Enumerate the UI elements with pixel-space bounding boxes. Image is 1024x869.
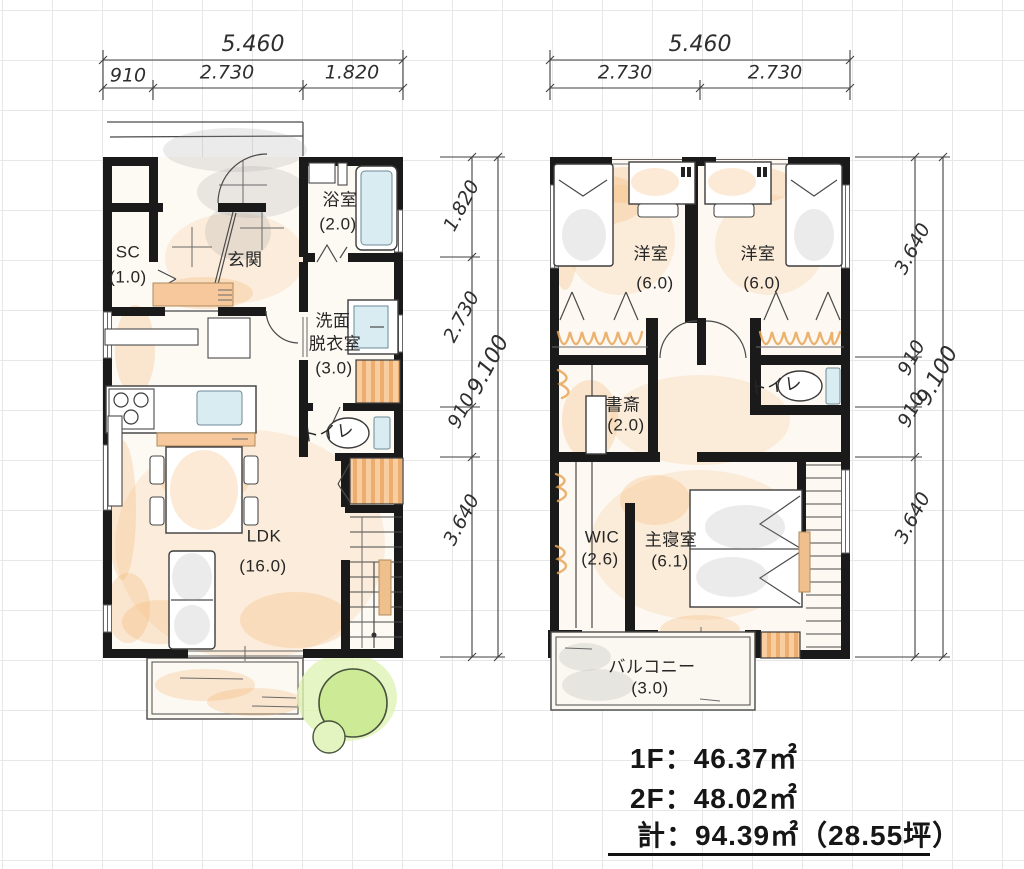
room-size-sc: (1.0) [109, 269, 146, 286]
hall-closet [761, 632, 800, 658]
room-size-ldk: (16.0) [239, 558, 286, 575]
stair-storage [350, 458, 403, 504]
room-size-wic: (2.6) [581, 551, 618, 568]
room-size-bedroom-left: (6.0) [636, 275, 673, 292]
floorplan-drawing [0, 0, 1024, 869]
room-label-study: 書斎 [606, 397, 641, 414]
f1-dim-seg-2730: 2.730 [200, 64, 254, 83]
room-size-bedroom-right: (6.0) [743, 275, 780, 292]
f1-dim-seg-910: 910 [110, 67, 146, 86]
room-size-master-bedroom: (6.1) [651, 553, 688, 570]
f1-dim-total-width: 5.460 [222, 34, 285, 56]
pantry-shelf [105, 329, 198, 345]
room-label-balcony: バルコニー [608, 659, 695, 676]
area-summary-total: 計：94.39㎡（28.55坪） [637, 822, 961, 850]
f2-dim-seg-2730a: 2.730 [598, 64, 652, 83]
area-summary-1f: 1F：46.37㎡ [630, 745, 798, 773]
room-label-bedroom-left: 洋室 [634, 246, 669, 263]
room-label-sc: SC [116, 244, 141, 261]
f1-dim-seg-1820: 1.820 [325, 64, 379, 83]
wood-deck [147, 658, 303, 719]
tv-board [108, 416, 122, 506]
room-label-bath: 浴室 [323, 192, 358, 209]
floor1-plan [103, 122, 403, 753]
room-label-washroom-1: 洗面 [316, 313, 351, 330]
garden-trees [297, 653, 397, 753]
study-desk [586, 396, 606, 454]
room-label-ldk: LDK [247, 528, 282, 545]
room-label-entrance: 玄関 [228, 252, 263, 269]
washroom-closet [356, 360, 400, 403]
kitchen-sink [197, 391, 242, 425]
f2-dim-total-width: 5.460 [669, 34, 732, 56]
room-label-bedroom-right: 洋室 [741, 246, 776, 263]
f2-dim-seg-2730b: 2.730 [748, 64, 802, 83]
room-size-study: (2.0) [607, 417, 644, 434]
floor2-plan [548, 157, 850, 710]
room-size-balcony: (3.0) [631, 680, 668, 697]
room-size-bath: (2.0) [319, 216, 356, 233]
floorplan-page: 5.460 910 2.730 1.820 5.460 2.730 2.730 … [0, 0, 1024, 869]
area-summary-underline [608, 853, 930, 856]
room-label-wic: WIC [585, 529, 620, 546]
area-summary-2f: 2F：48.02㎡ [630, 785, 798, 813]
room-label-washroom-2: 脱衣室 [309, 336, 362, 353]
room-size-washroom: (3.0) [315, 360, 352, 377]
room-label-master-bedroom: 主寝室 [645, 532, 698, 549]
